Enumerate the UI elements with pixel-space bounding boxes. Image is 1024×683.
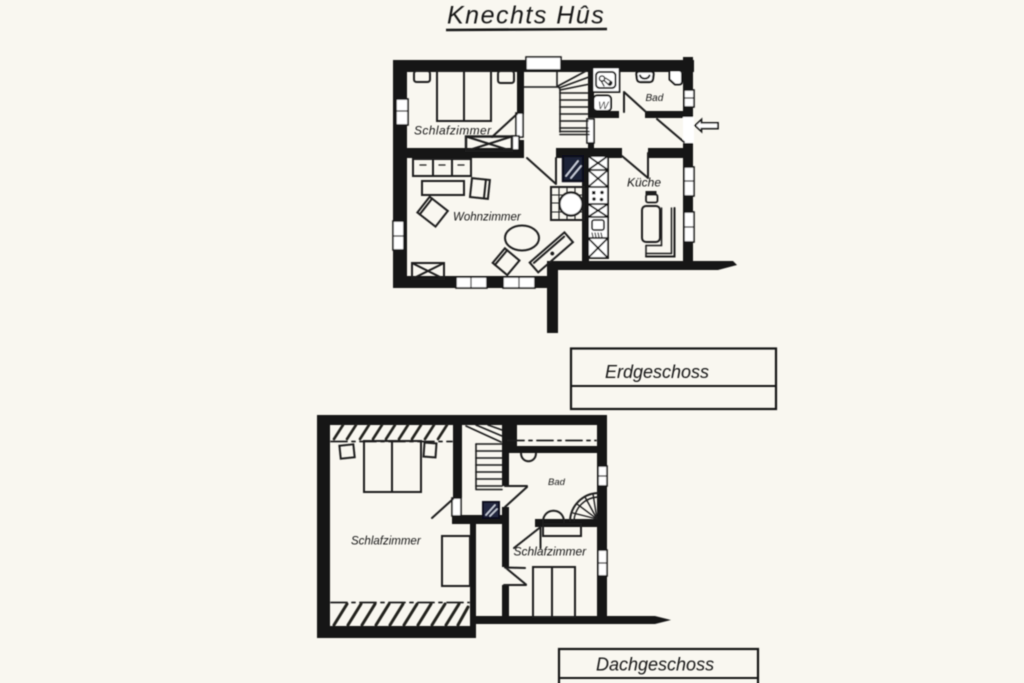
svg-text:Bad: Bad [548,477,566,488]
svg-text:Erdgeschoss: Erdgeschoss [605,362,709,382]
svg-text:Schlafzimmer: Schlafzimmer [414,124,492,138]
svg-text:Schlafzimmer: Schlafzimmer [351,536,422,548]
svg-text:Wohnzimmer: Wohnzimmer [453,212,522,224]
svg-text:Schlafzimmer: Schlafzimmer [514,545,588,559]
svg-text:Bad: Bad [646,93,664,104]
svg-text:W: W [598,100,610,112]
svg-text:Küche: Küche [627,176,661,190]
svg-text:Dachgeschoss: Dachgeschoss [596,655,714,675]
svg-text:Knechts Hûs: Knechts Hûs [447,2,605,30]
